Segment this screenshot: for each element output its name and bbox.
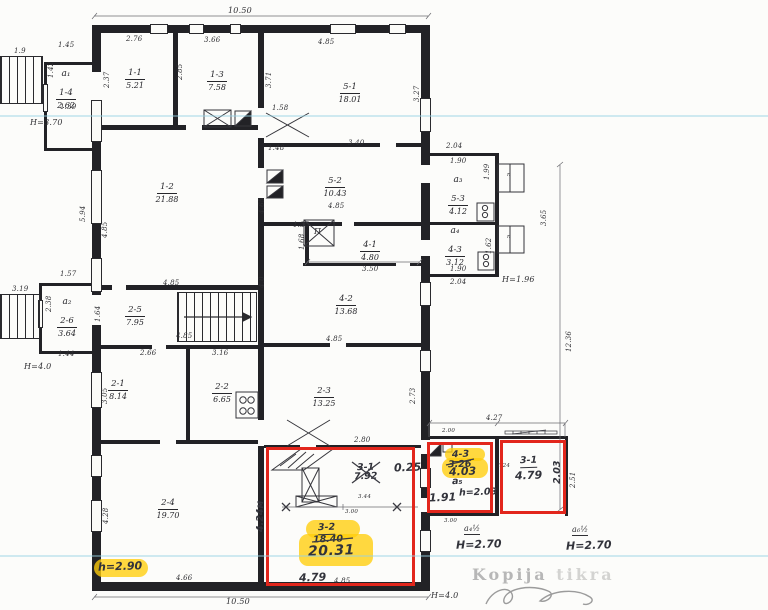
signature-squiggle (486, 588, 592, 605)
floor-plan-scan: Kopija tikra 10.5010.501.452.763.664.851… (0, 0, 768, 610)
red-box-room-4-3 (427, 442, 493, 513)
scanner-line (0, 115, 768, 117)
red-box-room-3-2 (266, 447, 415, 586)
scanner-line (0, 555, 768, 557)
red-box-room-3-1 (500, 440, 566, 514)
